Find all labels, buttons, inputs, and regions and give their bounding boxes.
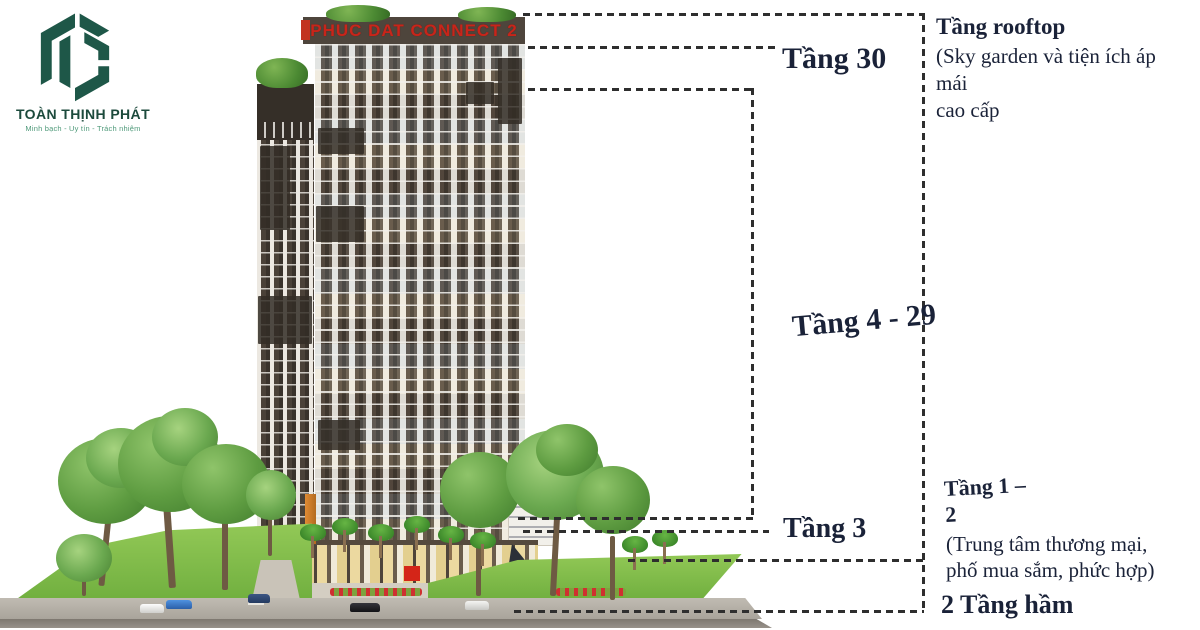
- street: [0, 598, 762, 619]
- balcony-block: [316, 206, 364, 242]
- car: [166, 600, 192, 609]
- rooftop-garden: [326, 5, 390, 22]
- car: [465, 601, 489, 610]
- logo-icon: [36, 12, 114, 102]
- balcony-block: [318, 128, 364, 154]
- shop-sign: [404, 566, 420, 581]
- callout-floor-1-2-line1: (Trung tâm thương mại,: [946, 531, 1192, 557]
- callout-rooftop-line2: cao cấp: [936, 97, 1192, 124]
- dashed-line-floor30: [528, 46, 776, 49]
- callout-rooftop-title: Tầng rooftop: [936, 14, 1192, 40]
- flower-bed: [556, 588, 626, 596]
- car: [140, 604, 164, 613]
- roof-flag: [301, 20, 310, 40]
- page: TOÀN THỊNH PHÁT Minh bạch - Uy tín - Trá…: [0, 0, 1200, 630]
- rooftop-garden: [458, 7, 516, 22]
- label-floor-4-29: Tầng 4 - 29: [791, 298, 938, 344]
- car: [248, 594, 270, 603]
- dashed-line-ground: [628, 559, 925, 562]
- balcony-block: [466, 82, 494, 104]
- balcony-block: [258, 296, 312, 344]
- label-floor-3: Tầng 3: [783, 513, 866, 545]
- callout-basement: 2 Tầng hầm: [941, 590, 1073, 620]
- callout-rooftop-line1: (Sky garden và tiện ích áp mái: [936, 43, 1192, 97]
- dashed-line-floor29-top: [528, 88, 754, 91]
- callout-floor-1-2-line2: phố mua sắm, phức hợp): [946, 557, 1192, 583]
- dashed-bracket-floor4-29: [751, 88, 754, 520]
- callout-rooftop: Tầng rooftop (Sky garden và tiện ích áp …: [936, 14, 1192, 124]
- building-sign-text: PHUC DAT CONNECT 2: [310, 21, 518, 41]
- car: [350, 603, 380, 612]
- company-tagline: Minh bạch - Uy tín - Trách nhiệm: [8, 124, 158, 133]
- rooftop-garden: [256, 58, 308, 88]
- label-floor-30: Tầng 30: [782, 42, 886, 76]
- balcony-block: [318, 420, 360, 450]
- dashed-line-floor3: [523, 530, 769, 533]
- building-left-wing-cap: [257, 84, 314, 140]
- street-curb: [0, 619, 772, 628]
- balcony-block: [498, 58, 522, 124]
- callout-floor-1-2-title: Tầng 1 – 2: [943, 471, 1036, 528]
- callout-floor-1-2: Tầng 1 – 2 (Trung tâm thương mại, phố mu…: [946, 476, 1192, 583]
- dashed-line-basement: [514, 610, 924, 613]
- flower-bed: [330, 588, 422, 596]
- balcony-block: [260, 146, 290, 230]
- company-name: TOÀN THỊNH PHÁT: [8, 106, 158, 122]
- dashed-line-floor4-bottom: [518, 517, 754, 520]
- dashed-line-rooftop: [523, 13, 923, 16]
